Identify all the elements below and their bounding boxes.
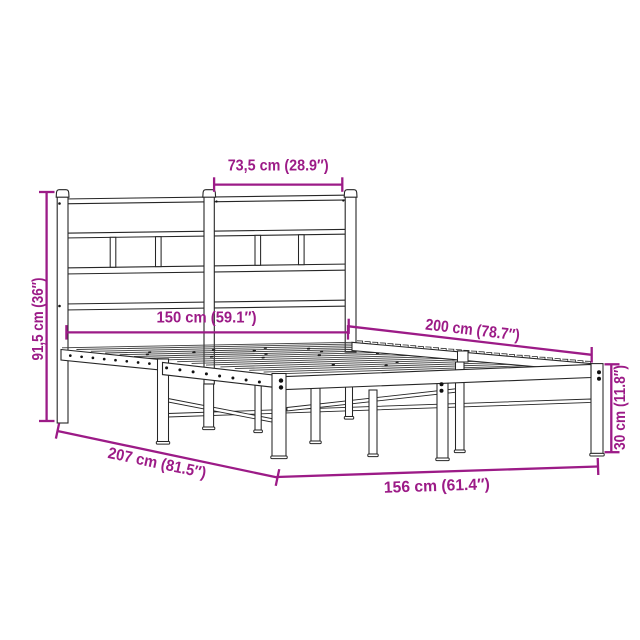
svg-text:150 cm (59.1″): 150 cm (59.1″)	[157, 310, 257, 327]
svg-text:73,5 cm (28.9″): 73,5 cm (28.9″)	[228, 158, 329, 175]
svg-text:91,5 cm (36″): 91,5 cm (36″)	[30, 278, 47, 361]
svg-text:156 cm (61.4″): 156 cm (61.4″)	[384, 476, 491, 497]
svg-text:30 cm (11.8″): 30 cm (11.8″)	[612, 365, 629, 450]
